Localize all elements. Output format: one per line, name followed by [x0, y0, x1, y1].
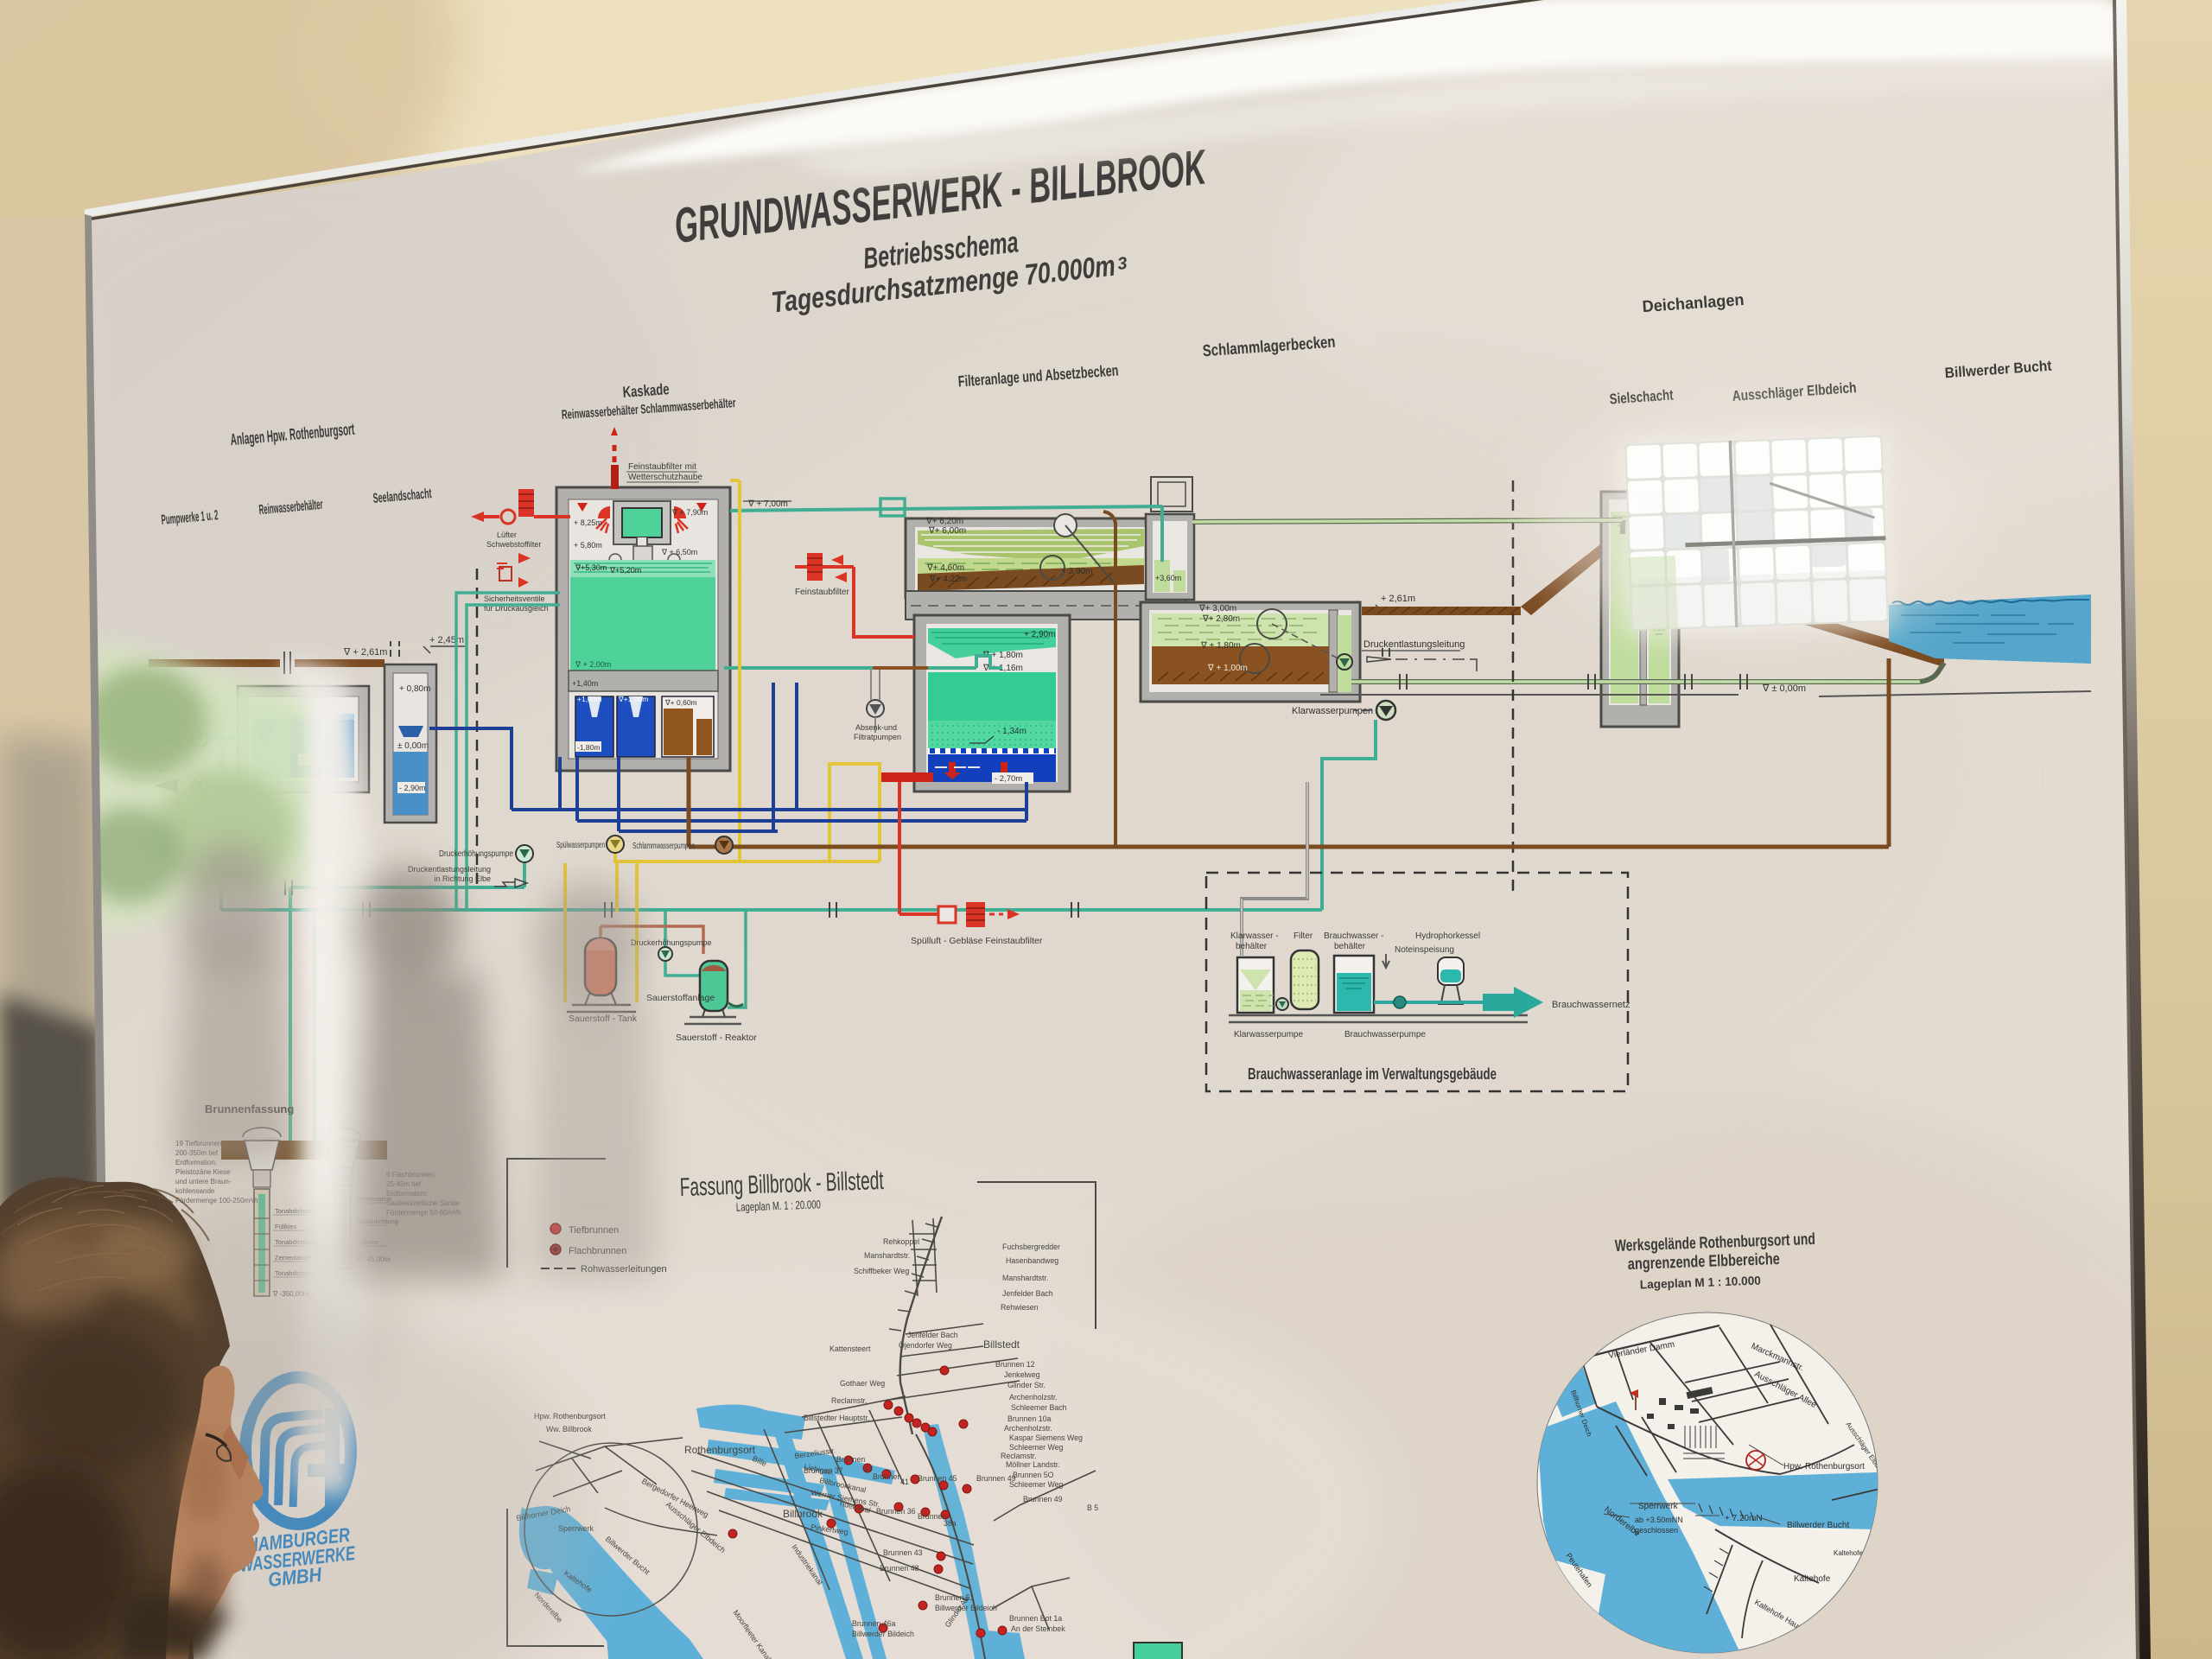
svg-text:Brunnen 49: Brunnen 49	[976, 1474, 1016, 1483]
svg-text:in Richtung Elbe: in Richtung Elbe	[434, 874, 491, 883]
svg-text:∇ + 6,50m: ∇ + 6,50m	[661, 548, 697, 556]
svg-text:+ 2,61m: + 2,61m	[1381, 594, 1415, 604]
svg-text:Sauerstoffanlage: Sauerstoffanlage	[646, 993, 715, 1003]
svg-text:-1,80m: -1,80m	[577, 743, 600, 752]
svg-text:∇ + 1,00m: ∇ + 1,00m	[1207, 664, 1248, 673]
svg-text:behälter: behälter	[1334, 942, 1366, 951]
svg-text:∇ + 2,61m: ∇ + 2,61m	[343, 647, 387, 658]
svg-text:Noteinspeisung: Noteinspeisung	[1395, 945, 1454, 955]
svg-text:Hpw. Rothenburgsort: Hpw. Rothenburgsort	[1783, 1462, 1865, 1471]
svg-text:Billstedter Hauptstr.: Billstedter Hauptstr.	[804, 1414, 869, 1422]
svg-text:Billbrook: Billbrook	[783, 1508, 823, 1520]
svg-text:Möllner Landstr.: Möllner Landstr.	[1006, 1460, 1060, 1469]
svg-text:Reclamstr.: Reclamstr.	[1001, 1452, 1037, 1460]
svg-text:Feinstaubfilter: Feinstaubfilter	[795, 588, 849, 597]
svg-text:Brunnen: Brunnen	[836, 1455, 865, 1464]
svg-text:+ 2,45m: + 2,45m	[429, 635, 464, 645]
svg-text:- 1,34m: - 1,34m	[997, 727, 1027, 736]
svg-text:∇+ 3,00m: ∇+ 3,00m	[1198, 604, 1236, 613]
svg-text:Brunnen 43: Brunnen 43	[883, 1548, 923, 1557]
svg-text:+ 3,90m: + 3,90m	[1061, 567, 1092, 576]
svg-text:ab +3.50mNN: ab +3.50mNN	[1635, 1516, 1683, 1524]
svg-text:∇ + 7,90m: ∇ + 7,90m	[671, 508, 708, 517]
svg-text:Fuchsbergredder: Fuchsbergredder	[1002, 1243, 1060, 1251]
svg-text:Hydrophorkessel: Hydrophorkessel	[1415, 931, 1480, 941]
svg-text:∇+ 0,60m: ∇+ 0,60m	[664, 698, 697, 707]
svg-text:Druckentlastungsleitung: Druckentlastungsleitung	[1363, 639, 1465, 650]
svg-text:Klarwasserpumpe: Klarwasserpumpe	[1234, 1030, 1303, 1039]
svg-text:Filter: Filter	[1294, 931, 1313, 941]
svg-text:Rothenburgsort: Rothenburgsort	[684, 1444, 756, 1456]
svg-text:∇+1,00m: ∇+1,00m	[618, 695, 648, 703]
svg-text:+ 7.20mN: + 7.20mN	[1725, 1514, 1763, 1523]
svg-text:Schiffbeker Weg: Schiffbeker Weg	[854, 1267, 909, 1275]
svg-text:Billwerder Bildeich: Billwerder Bildeich	[852, 1630, 914, 1638]
svg-text:Glinder Str.: Glinder Str.	[1007, 1381, 1046, 1389]
svg-text:Archenholzstr.: Archenholzstr.	[1009, 1393, 1058, 1402]
svg-text:Feinstaubfilter mit: Feinstaubfilter mit	[628, 462, 696, 472]
svg-text:Gothaer Weg: Gothaer Weg	[840, 1379, 885, 1388]
svg-text:+ 2,90m: + 2,90m	[1024, 630, 1055, 639]
svg-text:An der Steinbek: An der Steinbek	[1011, 1624, 1065, 1633]
svg-text:∇+ 4,22m: ∇+ 4,22m	[929, 575, 967, 584]
svg-text:∇ + 2,00m: ∇ + 2,00m	[575, 660, 611, 669]
svg-text:Brunnen 36: Brunnen 36	[876, 1507, 916, 1516]
svg-text:44: 44	[864, 1465, 873, 1473]
svg-text:Druckerhöhungspumpe: Druckerhöhungspumpe	[439, 849, 513, 859]
svg-text:Billstedt: Billstedt	[983, 1338, 1020, 1351]
svg-text:Brauchwasserpumpe: Brauchwasserpumpe	[1344, 1030, 1426, 1039]
svg-text:Kattensteert: Kattensteert	[829, 1344, 871, 1353]
svg-text:Spülluft - Gebläse Feinstaub: Spülluft - Gebläse Feinstaubfilter	[911, 936, 1043, 946]
svg-text:Absenk-und: Absenk-und	[855, 723, 897, 732]
svg-text:∇ ± 0,00m: ∇ ± 0,00m	[1762, 683, 1806, 694]
svg-text:+ 5,80m: + 5,80m	[574, 541, 602, 550]
svg-text:Manshardtstr.: Manshardtstr.	[1002, 1274, 1048, 1282]
svg-text:Spülwasserpumpen: Spülwasserpumpen	[556, 841, 605, 850]
svg-text:Jenfelder Bach: Jenfelder Bach	[1002, 1289, 1053, 1298]
svg-text:Brunnen: Brunnen	[873, 1472, 901, 1481]
svg-text:+1,00m: +1,00m	[577, 695, 602, 703]
svg-text:+1,40m: +1,40m	[572, 679, 598, 688]
svg-text:Brunnen 12: Brunnen 12	[995, 1360, 1035, 1369]
svg-text:Kaskade: Kaskade	[622, 380, 670, 401]
svg-text:+ 0,80m: + 0,80m	[399, 684, 430, 694]
svg-text:∇+5,30m: ∇+5,30m	[575, 563, 607, 572]
svg-text:Druckerhöhungspumpe: Druckerhöhungspumpe	[631, 938, 712, 947]
svg-text:3: 3	[1116, 254, 1128, 274]
svg-text:Lüfter: Lüfter	[497, 531, 517, 539]
svg-text:Archenholzstr.: Archenholzstr.	[1004, 1424, 1052, 1433]
svg-text:Filtratpumpen: Filtratpumpen	[854, 733, 901, 741]
svg-text:- 2,70m: - 2,70m	[995, 774, 1022, 784]
svg-text:Brunnen 48: Brunnen 48	[880, 1564, 919, 1573]
svg-text:+3,60m: +3,60m	[1155, 574, 1181, 582]
svg-text:Brunnen 49: Brunnen 49	[1023, 1495, 1063, 1503]
svg-text:± 0,00m: ± 0,00m	[397, 741, 429, 751]
svg-text:Jenkelweg: Jenkelweg	[1004, 1370, 1040, 1379]
svg-text:∇+5,20m: ∇+5,20m	[609, 566, 641, 575]
svg-text:Kaspar Siemens Weg: Kaspar Siemens Weg	[1009, 1433, 1083, 1442]
svg-text:Kaltehofe: Kaltehofe	[1794, 1574, 1831, 1584]
svg-text:Brauchwasser -: Brauchwasser -	[1324, 931, 1383, 941]
svg-text:Hasenbandweg: Hasenbandweg	[1006, 1256, 1058, 1265]
svg-text:- 2,90m: - 2,90m	[399, 784, 426, 792]
svg-text:Klarwasserpumpen: Klarwasserpumpen	[1292, 706, 1373, 716]
svg-text:38a: 38a	[944, 1519, 957, 1528]
svg-text:Schlammwasserpumpen: Schlammwasserpumpen	[632, 842, 695, 851]
svg-text:Brauchwassernetz: Brauchwassernetz	[1552, 1000, 1630, 1010]
svg-text:∇+ 4,60m: ∇+ 4,60m	[926, 563, 964, 573]
svg-text:Jenfelder Bach: Jenfelder Bach	[907, 1331, 958, 1339]
svg-text:Brunnen Bot 1a: Brunnen Bot 1a	[1009, 1614, 1062, 1623]
svg-text:Brauchwasseranlage im Verwaltu: Brauchwasseranlage im Verwaltungsgebäude	[1248, 1065, 1497, 1083]
svg-text:Schleemer Weg: Schleemer Weg	[1009, 1443, 1064, 1452]
svg-text:Rehwiesen: Rehwiesen	[1001, 1303, 1039, 1312]
svg-text:Manshardtstr.: Manshardtstr.	[864, 1251, 910, 1260]
svg-text:Schwebstoffilter: Schwebstoffilter	[486, 540, 541, 549]
svg-text:behälter: behälter	[1236, 942, 1268, 951]
svg-text:Reclamstr.: Reclamstr.	[831, 1396, 868, 1405]
svg-text:Brunnen 45: Brunnen 45	[918, 1474, 957, 1483]
svg-text:∇+ 2,80m: ∇+ 2,80m	[1202, 614, 1240, 624]
svg-text:Öjendorfer Weg: Öjendorfer Weg	[899, 1341, 952, 1350]
svg-text:∇+ 6,20m: ∇+ 6,20m	[925, 517, 963, 526]
svg-text:∇ + 1,80m: ∇ + 1,80m	[1200, 641, 1241, 651]
svg-text:Schleemer Bach: Schleemer Bach	[1011, 1403, 1067, 1412]
svg-text:B 5: B 5	[1087, 1503, 1098, 1512]
svg-text:∇+ 6,00m: ∇+ 6,00m	[928, 526, 966, 536]
svg-text:Wetterschutzhaube: Wetterschutzhaube	[628, 473, 702, 482]
svg-text:Billwerder Bucht: Billwerder Bucht	[1787, 1521, 1849, 1530]
svg-text:Klarwasser -: Klarwasser -	[1230, 931, 1279, 941]
svg-text:Brunnen 46a: Brunnen 46a	[852, 1619, 895, 1628]
svg-text:Sauerstoff - Reaktor: Sauerstoff - Reaktor	[676, 1033, 757, 1043]
svg-text:Schleemer Weg: Schleemer Weg	[1009, 1480, 1064, 1489]
svg-text:Brunnen: Brunnen	[918, 1512, 946, 1521]
svg-text:Rehkoppel: Rehkoppel	[883, 1237, 919, 1246]
svg-text:Brunnen 5O: Brunnen 5O	[1013, 1471, 1054, 1479]
svg-text:41: 41	[900, 1478, 909, 1486]
svg-text:Sicherheitsventile: Sicherheitsventile	[484, 594, 545, 603]
svg-text:+ 8,25m: + 8,25m	[574, 518, 602, 527]
svg-text:Brunnen 10a: Brunnen 10a	[1007, 1414, 1051, 1423]
